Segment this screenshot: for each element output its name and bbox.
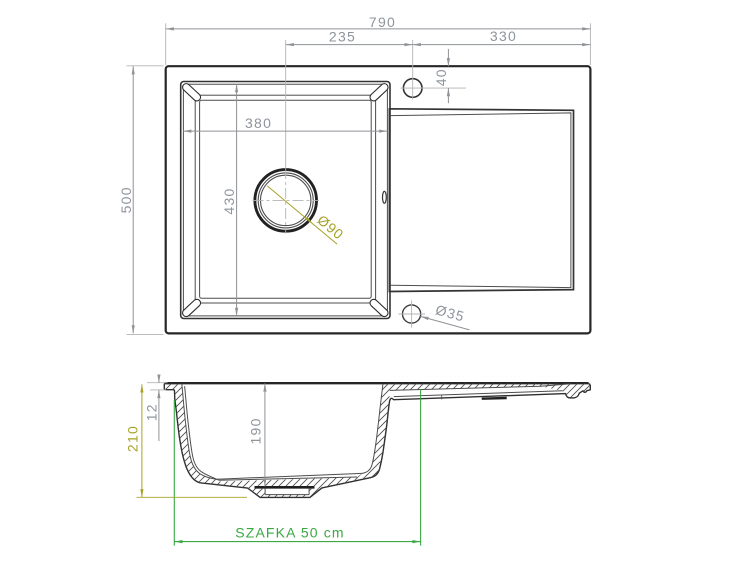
svg-text:330: 330: [490, 28, 517, 44]
svg-text:12: 12: [143, 403, 159, 421]
svg-text:790: 790: [369, 14, 396, 30]
svg-text:40: 40: [433, 68, 449, 86]
svg-text:430: 430: [221, 187, 237, 214]
svg-text:SZAFKA 50 cm: SZAFKA 50 cm: [235, 525, 345, 541]
svg-text:190: 190: [247, 417, 263, 444]
svg-text:380: 380: [245, 115, 272, 131]
svg-text:500: 500: [118, 186, 134, 213]
svg-text:235: 235: [329, 28, 356, 44]
svg-text:210: 210: [125, 425, 141, 452]
